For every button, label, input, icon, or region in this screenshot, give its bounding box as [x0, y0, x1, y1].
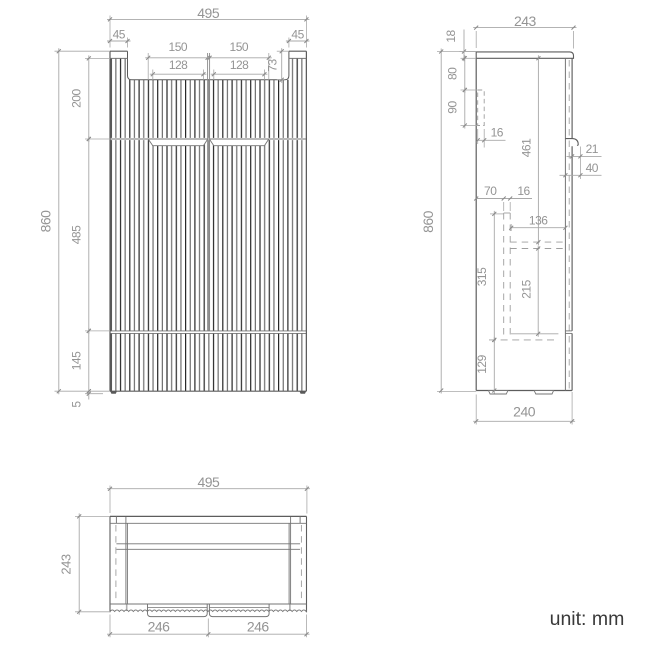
svg-text:90: 90	[446, 101, 460, 114]
svg-text:215: 215	[519, 279, 533, 298]
svg-text:128: 128	[230, 58, 249, 72]
svg-text:145: 145	[69, 351, 83, 370]
svg-text:485: 485	[69, 225, 83, 244]
svg-text:70: 70	[484, 184, 497, 198]
svg-text:860: 860	[37, 210, 53, 233]
svg-text:5: 5	[69, 401, 83, 408]
svg-text:246: 246	[247, 618, 270, 634]
svg-text:16: 16	[491, 126, 504, 140]
svg-text:243: 243	[514, 13, 537, 29]
svg-text:150: 150	[230, 40, 249, 54]
svg-text:16: 16	[517, 184, 530, 198]
svg-text:240: 240	[513, 404, 536, 420]
svg-text:200: 200	[69, 89, 83, 108]
svg-text:150: 150	[169, 40, 188, 54]
svg-text:246: 246	[148, 618, 171, 634]
svg-text:45: 45	[113, 28, 126, 42]
svg-text:73: 73	[266, 59, 280, 72]
svg-text:461: 461	[520, 138, 534, 157]
svg-text:80: 80	[446, 67, 460, 80]
svg-text:21: 21	[586, 142, 599, 156]
svg-text:40: 40	[586, 161, 599, 175]
svg-text:243: 243	[58, 554, 73, 574]
svg-text:315: 315	[475, 267, 489, 286]
svg-text:860: 860	[420, 210, 436, 233]
svg-text:495: 495	[197, 5, 220, 21]
svg-text:495: 495	[197, 474, 220, 490]
svg-text:45: 45	[291, 28, 304, 42]
svg-text:129: 129	[475, 354, 489, 373]
svg-text:unit: mm: unit: mm	[550, 608, 625, 630]
svg-text:18: 18	[444, 30, 458, 43]
svg-text:136: 136	[529, 213, 548, 227]
svg-text:128: 128	[169, 58, 188, 72]
